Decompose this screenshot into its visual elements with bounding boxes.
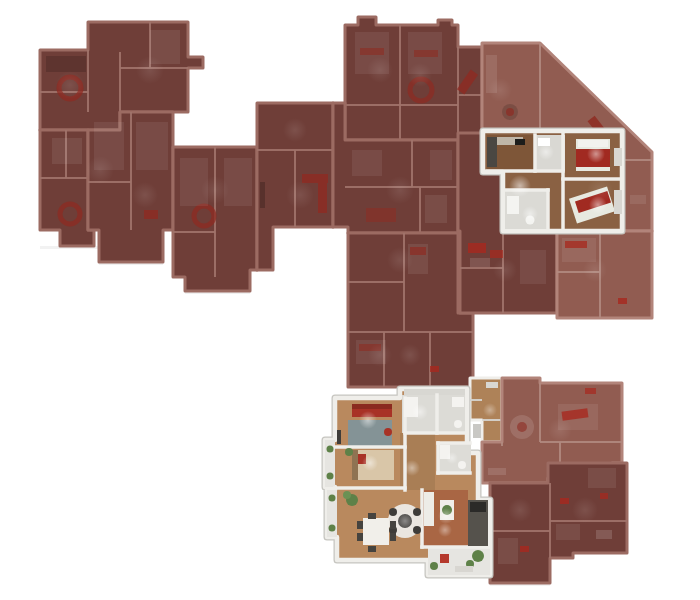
unit-u02 bbox=[40, 130, 94, 246]
furniture-hint bbox=[430, 366, 439, 372]
ambient-light-glow bbox=[408, 63, 432, 87]
furniture-hint bbox=[352, 150, 382, 176]
furniture-shape bbox=[507, 196, 519, 214]
furniture-hint bbox=[144, 210, 158, 219]
ceiling-light-glow bbox=[362, 455, 378, 471]
ceiling-light-glow bbox=[509, 175, 531, 197]
ambient-light-glow bbox=[583, 258, 607, 282]
furniture-shape bbox=[472, 550, 484, 562]
furniture-hint bbox=[483, 403, 497, 417]
ambient-light-glow bbox=[488, 78, 512, 102]
furniture-hint bbox=[486, 382, 498, 388]
furniture-shape bbox=[413, 508, 421, 516]
furniture-hint bbox=[473, 424, 481, 438]
furniture-hint bbox=[520, 250, 546, 284]
furniture-shape bbox=[413, 526, 421, 534]
furniture-shape bbox=[424, 492, 434, 526]
ambient-light-glow bbox=[399, 344, 421, 366]
furniture-shape bbox=[343, 491, 351, 499]
furniture-shape bbox=[384, 428, 392, 436]
furniture-shape bbox=[455, 566, 473, 572]
furniture-hint bbox=[498, 538, 518, 564]
furniture-shape bbox=[614, 190, 622, 214]
furniture-shape bbox=[614, 148, 622, 166]
furniture-hint bbox=[318, 183, 327, 213]
furniture-hint bbox=[490, 250, 503, 258]
ceiling-light-glow bbox=[446, 452, 458, 464]
furniture-hint bbox=[410, 247, 426, 255]
furniture-hint bbox=[560, 498, 569, 504]
units-layer bbox=[40, 17, 652, 583]
ambient-light-glow bbox=[201, 176, 229, 204]
ambient-light-glow bbox=[572, 497, 598, 523]
furniture-hint bbox=[630, 195, 646, 204]
furniture-hint bbox=[360, 48, 384, 55]
furniture-hint bbox=[468, 243, 486, 253]
ambient-light-glow bbox=[386, 176, 414, 204]
ambient-light-glow bbox=[387, 247, 413, 273]
furniture-hint bbox=[565, 241, 587, 248]
furniture-shape bbox=[363, 518, 389, 545]
furniture-shape bbox=[345, 448, 353, 456]
furniture-hint bbox=[224, 158, 252, 206]
furniture-hint bbox=[520, 546, 529, 552]
ambient-light-glow bbox=[548, 418, 572, 442]
ceiling-light-glow bbox=[395, 511, 415, 531]
furniture-shape bbox=[352, 404, 392, 409]
ambient-light-glow bbox=[508, 498, 532, 522]
ambient-light-glow bbox=[367, 57, 393, 83]
ceiling-light-glow bbox=[438, 523, 452, 537]
room-floor bbox=[404, 389, 465, 395]
furniture-shape bbox=[357, 521, 363, 529]
furniture-shape bbox=[452, 397, 464, 407]
furniture-shape bbox=[440, 554, 449, 563]
furniture-hint bbox=[470, 258, 490, 267]
furniture-shape bbox=[352, 450, 358, 480]
furniture-shape bbox=[357, 533, 363, 541]
furniture-hint bbox=[488, 468, 506, 475]
furniture-hint bbox=[618, 298, 627, 304]
ambient-light-glow bbox=[132, 182, 158, 208]
furniture-hint bbox=[588, 468, 616, 488]
furniture-shape bbox=[470, 502, 486, 512]
unit-h02[interactable] bbox=[325, 389, 490, 575]
ceiling-light-glow bbox=[522, 206, 538, 222]
furniture-shape bbox=[389, 508, 397, 516]
furniture-hint bbox=[366, 208, 396, 222]
furniture-shape bbox=[454, 420, 462, 428]
furniture-hint bbox=[506, 108, 514, 116]
ambient-light-glow bbox=[286, 181, 314, 209]
ambient-light-glow bbox=[56, 71, 84, 99]
furniture-hint bbox=[556, 524, 580, 540]
furniture-hint bbox=[600, 493, 608, 499]
floorplan-svg bbox=[0, 0, 700, 600]
furniture-hint bbox=[585, 388, 596, 394]
ambient-light-glow bbox=[283, 118, 307, 142]
unit-u04 bbox=[173, 147, 257, 291]
furniture-shape bbox=[458, 461, 466, 469]
furniture-hint bbox=[430, 150, 452, 180]
ceiling-light-glow bbox=[412, 404, 428, 420]
furniture-shape bbox=[368, 513, 376, 519]
furniture-hint bbox=[52, 138, 82, 164]
furniture-shape bbox=[337, 430, 341, 444]
ceiling-light-glow bbox=[587, 145, 605, 163]
ambient-light-glow bbox=[493, 258, 517, 282]
ambient-light-glow bbox=[86, 156, 114, 184]
furniture-hint bbox=[596, 530, 612, 539]
furniture-shape bbox=[329, 525, 336, 532]
furniture-hint bbox=[260, 182, 265, 208]
ambient-light-glow bbox=[587, 177, 613, 203]
unit-u03 bbox=[88, 112, 173, 262]
furniture-shape bbox=[390, 533, 396, 541]
ceiling-light-glow bbox=[438, 508, 454, 524]
furniture-shape bbox=[327, 473, 334, 480]
ceiling-light-glow bbox=[359, 411, 377, 429]
furniture-hint bbox=[46, 56, 86, 72]
furniture-shape bbox=[327, 446, 334, 453]
furniture-shape bbox=[368, 546, 376, 552]
furniture-hint bbox=[302, 174, 328, 183]
ambient-light-glow bbox=[136, 56, 164, 84]
ambient-light-glow bbox=[368, 343, 392, 367]
furniture-hint bbox=[414, 50, 438, 57]
unit-lobby bbox=[470, 378, 502, 442]
furniture-shape bbox=[430, 562, 438, 570]
furniture-hint bbox=[425, 195, 447, 223]
furniture-shape bbox=[329, 495, 336, 502]
furniture-shape bbox=[487, 137, 497, 167]
furniture-shape bbox=[515, 139, 525, 145]
furniture-hint bbox=[136, 122, 168, 170]
floorplan bbox=[0, 0, 700, 600]
ceiling-light-glow bbox=[538, 144, 554, 160]
ceiling-light-glow bbox=[404, 460, 420, 476]
furniture-hint bbox=[517, 422, 527, 432]
